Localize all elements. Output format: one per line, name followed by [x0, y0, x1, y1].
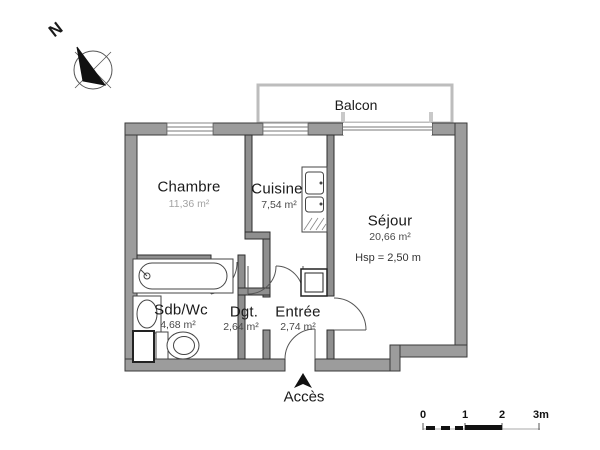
toilet-icon [156, 332, 199, 359]
bathtub-icon [133, 259, 233, 293]
room-label-entree: Entrée [275, 304, 320, 321]
room-label-sejour: Séjour [368, 213, 413, 230]
living-room-bay-window-icon [343, 123, 432, 135]
room-label-sdbwc: Sdb/Wc [154, 302, 208, 319]
room-label-cuisine: Cuisine [251, 181, 302, 198]
kitchen-window-icon [263, 123, 308, 135]
room-area-sejour: 20,66 m² [369, 231, 410, 243]
scale-label-3m: 3m [533, 409, 549, 421]
room-area-dgt: 2,64 m² [223, 321, 259, 333]
closet-icon [301, 269, 327, 296]
balcony-label: Balcon [335, 97, 378, 113]
scale-label-1: 1 [462, 409, 468, 421]
scale-bar [423, 423, 540, 430]
room-area-sdbwc: 4,68 m² [160, 319, 196, 331]
floor-plan-drawing [0, 0, 600, 450]
room-label-dgt: Dgt. [230, 304, 258, 321]
scale-label-0: 0 [420, 409, 426, 421]
kitchen-door-icon [276, 266, 303, 294]
scale-label-2: 2 [499, 409, 505, 421]
duct-column [133, 331, 154, 362]
north-compass-icon [74, 47, 112, 89]
room-note-sejour: Hsp = 2,50 m [355, 252, 421, 264]
room-label-chambre: Chambre [157, 179, 220, 196]
bedroom-window-icon [167, 123, 213, 135]
access-label: Accès [284, 389, 325, 406]
floor-plan: N Balcon Chambre 11,36 m² Cuisine 7,54 m… [0, 0, 600, 450]
kitchen-sink-icon [302, 167, 327, 232]
access-arrow-icon [294, 373, 312, 388]
living-room-door-icon [334, 298, 366, 330]
window-icons [167, 123, 432, 135]
room-area-cuisine: 7,54 m² [261, 199, 297, 211]
entrance-door-icon [285, 329, 315, 359]
room-area-chambre: 11,36 m² [169, 198, 210, 210]
room-area-entree: 2,74 m² [280, 321, 316, 333]
